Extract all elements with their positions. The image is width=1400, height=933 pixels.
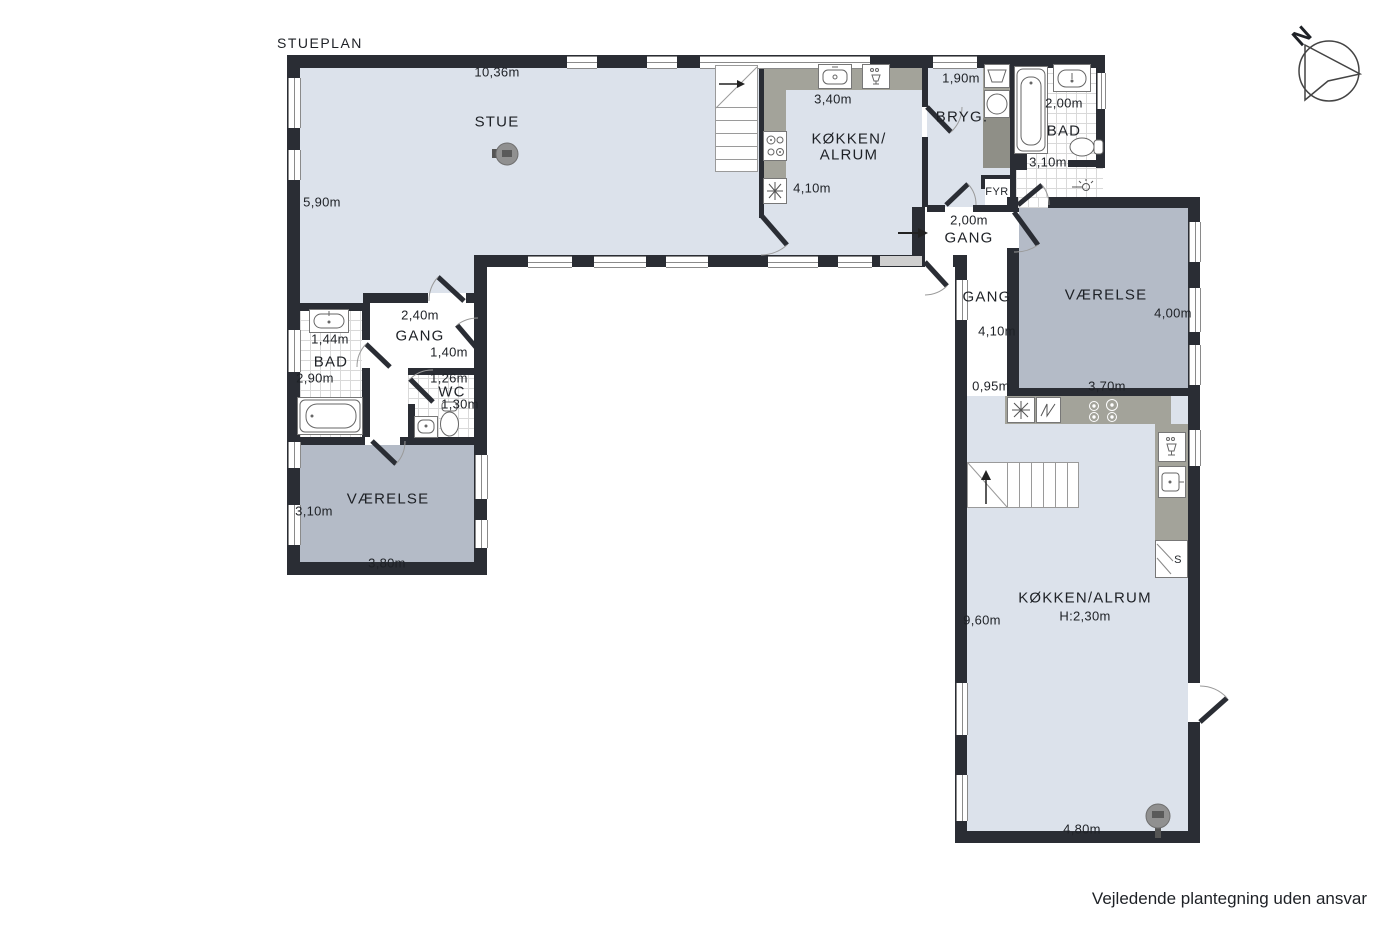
closet-s-label: S [1174, 554, 1182, 566]
stove-pejs-icon-2 [1146, 804, 1170, 838]
bad-ne-width-label: 2,00m [1045, 96, 1083, 111]
koekken-syd-width-label: 4,80m [1063, 822, 1101, 837]
disclaimer-text: Vejledende plantegning uden ansvar [1092, 889, 1367, 909]
koekken-syd-depth-label: 9,60m [963, 613, 1001, 628]
gang-entre-width-label: 2,00m [950, 213, 988, 228]
koekken-name-line2: ALRUM [820, 147, 879, 164]
vaerelse-vest-width-label: 3,80m [368, 556, 406, 571]
compass-rose-icon [1299, 41, 1360, 101]
page-title: STUEPLAN [277, 35, 363, 51]
gang-vest-width-label: 2,40m [401, 308, 439, 323]
stairs-upper-run [716, 67, 757, 108]
bad-vest-depth-label: 2,90m [296, 371, 334, 386]
fyr-name-label: FYR [985, 186, 1009, 198]
koekken-name-line1: KØKKEN/ [811, 131, 886, 148]
koekken-depth-label: 4,10m [793, 181, 831, 196]
wc-depth-label: 1,30m [441, 397, 479, 412]
gang-vest-name-label: GANG [396, 328, 445, 345]
gang-oest-name-label: GANG [963, 289, 1012, 306]
stue-name-label: STUE [475, 114, 520, 131]
bryg-name-label: BRYG. [936, 109, 988, 126]
door-leaves [366, 107, 1227, 722]
stove-pejs-icon [492, 143, 518, 165]
vaerelse-vest-depth-label: 3,10m [295, 504, 333, 519]
bad-vest-width-label: 1,44m [311, 332, 349, 347]
bad-ne-depth-label: 3,10m [1029, 155, 1067, 170]
vaerelse-oest-width-label: 3,70m [1088, 379, 1126, 394]
vaerelse-oest-name-label: VÆRELSE [1065, 287, 1148, 304]
shower-icon [1072, 179, 1093, 191]
vaerelse-oest-depth-label: 4,00m [1154, 306, 1192, 321]
gang-oest-depth-label: 4,10m [978, 324, 1016, 339]
koekken-syd-name-label: KØKKEN/ALRUM [1018, 590, 1152, 607]
gang-vest-width2-label: 1,40m [430, 345, 468, 360]
stue-width-label: 10,36m [474, 65, 519, 80]
gang-entre-name-label: GANG [945, 230, 994, 247]
stue-depth-label: 5,90m [303, 195, 341, 210]
floorplan-canvas: STUEPLAN Vejledende plantegning uden ans… [0, 0, 1400, 933]
closet-rod-lines [1157, 544, 1173, 574]
entry-arrow-icon [898, 228, 928, 238]
stairs-lower-run [968, 463, 1007, 507]
stair-arrow-icon [719, 80, 745, 88]
bad-ne-name-label: BAD [1047, 123, 1081, 140]
koekken-width-label: 3,40m [814, 92, 852, 107]
bryg-width-label: 1,90m [942, 71, 980, 86]
vaerelse-vest-name-label: VÆRELSE [347, 491, 430, 508]
koekken-syd-ceiling-label: H:2,30m [1059, 609, 1110, 624]
plan-annotations [0, 0, 1400, 933]
gang-oest-width-label: 0,95m [972, 379, 1010, 394]
bad-vest-name-label: BAD [314, 354, 348, 371]
